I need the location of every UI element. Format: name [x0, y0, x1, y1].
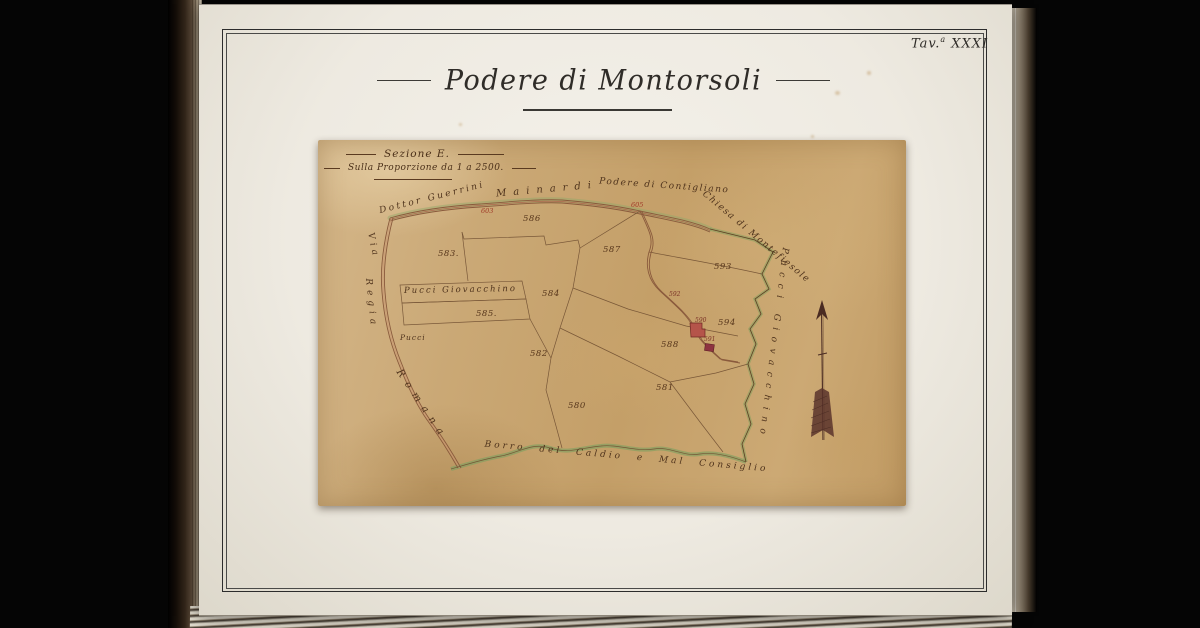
parcel-number: 591: [704, 336, 715, 343]
map-sheet: 580581582583.584585.58658758859359459059…: [318, 140, 906, 506]
boundary-green-highlight: [390, 200, 773, 469]
scale-caption: Sulla Proporzione da 1 a 2500.: [324, 163, 536, 173]
label-strip-owner: Pucci Giovacchino: [404, 285, 517, 295]
page-title-text: Podere di Montorsoli: [445, 64, 762, 97]
parcel-number: 582: [530, 349, 548, 359]
plate-prefix: Tav.: [911, 36, 940, 51]
caption-dash: [324, 168, 340, 169]
parcel-numbers: 580581582583.584585.58658758859359459059…: [438, 201, 736, 411]
plate-number: Tav.a XXXI: [911, 35, 991, 51]
parcel-number: 603: [481, 207, 493, 215]
foxing-spot: [811, 135, 814, 138]
farmhouse-main: [690, 323, 705, 337]
label-strip-owner-small: Pucci: [400, 334, 426, 342]
foxing-spot: [459, 123, 462, 126]
plate-sup: a: [940, 35, 946, 44]
caption-dash: [346, 154, 376, 155]
parcel-number: 588: [661, 340, 679, 350]
title-underline: [523, 109, 672, 111]
title-dash-left: [377, 80, 431, 82]
section-label: Sezione E.: [384, 148, 450, 160]
parcel-number: 590: [695, 317, 707, 324]
parcel-number: 587: [603, 245, 621, 255]
parcel-number: 581: [656, 383, 674, 393]
north-arrow-icon: [811, 300, 834, 440]
atlas-page: Tav.a XXXI Podere di Montorsoli: [199, 4, 1012, 616]
caption-rule: [374, 179, 452, 180]
farmhouse-annex: [704, 343, 714, 351]
parcel-number: 580: [568, 401, 586, 411]
caption-dash: [458, 154, 504, 155]
parcel-number: 585.: [476, 309, 497, 319]
caption-dash: [512, 168, 536, 169]
parcel-number: 584: [542, 289, 560, 299]
book-spine: [168, 0, 202, 628]
parcel-number: 594: [718, 318, 736, 328]
parcel-number: 605: [631, 201, 643, 209]
photo-canvas: Tav.a XXXI Podere di Montorsoli: [0, 0, 1200, 628]
parcel-number: 592: [669, 291, 681, 298]
page-title: Podere di Montorsoli: [222, 65, 985, 96]
scale-label: Sulla Proporzione da 1 a 2500.: [348, 163, 504, 173]
road-top: [390, 200, 710, 232]
section-caption: Sezione E.: [346, 148, 504, 160]
title-dash-right: [776, 80, 830, 82]
parcel-lines: [400, 211, 762, 452]
parcel-number: 593: [714, 262, 732, 272]
plate-numeral: XXXI: [951, 36, 988, 51]
page-edge-right: [1009, 8, 1037, 612]
parcel-number: 583.: [438, 249, 459, 259]
parcel-number: 586: [523, 214, 541, 224]
